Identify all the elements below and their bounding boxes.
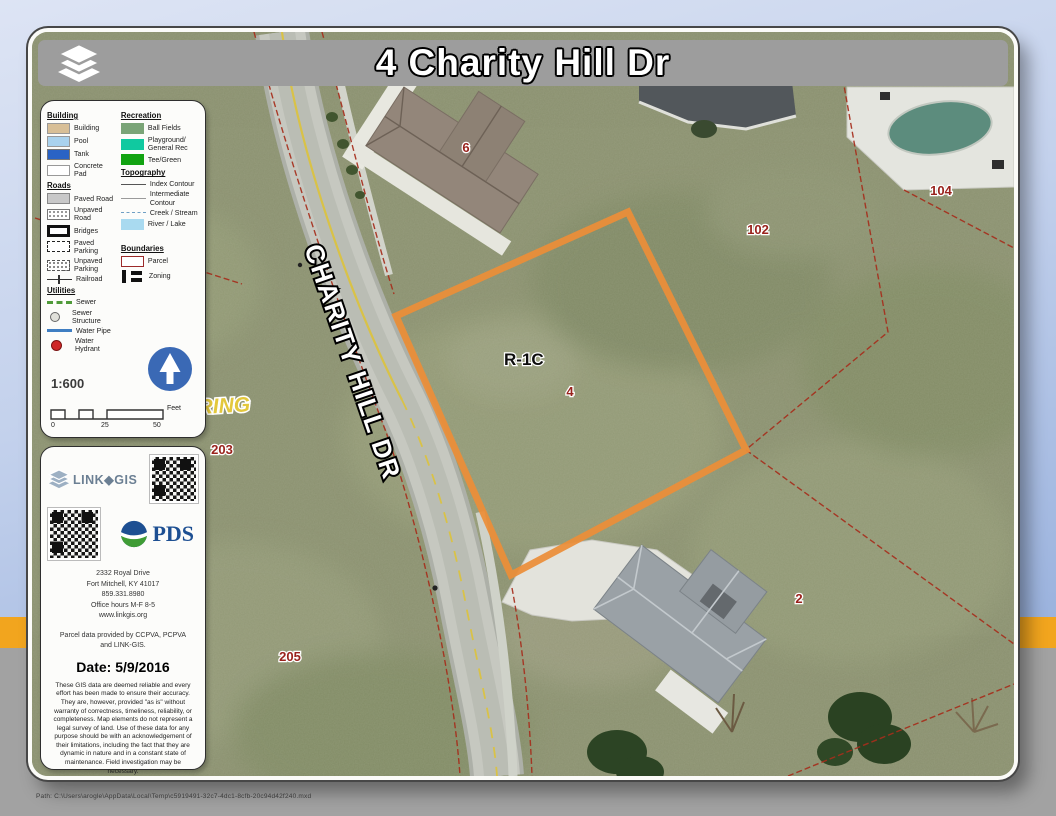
page-title: 4 Charity Hill Dr [376,42,671,84]
scale-tick-50: 50 [153,422,161,429]
river-lake-swatch [121,219,144,230]
paved-parking-swatch [47,241,70,252]
legend-panel: Building Building Pool Tank Concrete Pad… [40,100,206,438]
paved-road-swatch [47,193,70,204]
legend-label: Water Hydrant [75,337,115,353]
parcel-label-6: 6 [462,140,469,155]
address-line: 2332 Royal Drive [48,569,198,580]
linkgis-wordmark: LINK◆GIS [73,472,137,487]
parcel-label-102: 102 [747,222,769,237]
sewer-line-icon [47,301,72,304]
address-line: Office hours M-F 8-5 [48,601,198,612]
scale-bar: 0 25 50 Feet [49,403,199,433]
linkgis-logo: LINK◆GIS [48,469,137,489]
legend-label: Playground/ General Rec [148,136,199,152]
legend-label: Zoning [149,272,171,280]
water-hydrant-icon [51,340,62,351]
office-address-block: 2332 Royal Drive Fort Mitchell, KY 41017… [48,569,198,622]
sewer-structure-icon [50,312,60,322]
zoning-label: R-1C [504,350,544,369]
document-path: Path: C:\Users\arogle\AppData\Local\Temp… [36,793,311,800]
legend-label: Parcel [148,257,168,265]
north-arrow [147,346,193,397]
map-date: Date: 5/9/2016 [48,659,198,675]
address-line: Fort Mitchell, KY 41017 [48,580,198,591]
legend-header-boundaries: Boundaries [121,244,199,253]
parcel-label-104: 104 [930,183,952,198]
legend-label: Sewer [76,298,96,306]
legend-label: Sewer Structure [72,309,115,325]
legend-label: Intermediate Contour [150,190,199,206]
pds-wordmark: PDS [152,521,194,547]
scale-ratio: 1:600 [51,376,84,391]
legend-label: Water Pipe [76,327,111,335]
pool-swatch [47,136,70,147]
utility-point-2 [298,263,302,267]
scale-tick-25: 25 [101,422,109,429]
disclaimer-text: These GIS data are deemed reliable and e… [48,682,198,776]
parcel-label-203: 203 [211,442,233,457]
playground-swatch [121,139,144,150]
legend-label: Building [74,124,99,132]
qr-code-bottom [48,508,100,560]
parcel-label-205: 205 [279,649,301,664]
website-url: www.linkgis.org [48,611,198,622]
zoning-boundary-icon [121,269,145,284]
layers-icon [56,44,102,82]
linkgis-layers-icon [48,469,70,489]
legend-header-roads: Roads [47,181,115,190]
map-sheet: CHARITY HILL DR R-1C RING 4 6 102 104 20… [28,28,1018,780]
parcel-boundary-swatch [121,256,144,267]
tank-swatch [47,149,70,160]
legend-header-recreation: Recreation [121,111,199,120]
legend-label: Tee/Green [148,156,181,164]
legend-label: Pool [74,137,88,145]
legend-header-topography: Topography [121,168,199,177]
legend-header-building: Building [47,111,115,120]
creek-stream-icon [121,212,146,213]
legend-label: Bridges [74,227,98,235]
legend-label: Creek / Stream [150,209,198,217]
ball-fields-swatch [121,123,144,134]
legend-label: Ball Fields [148,124,181,132]
utility-point [432,585,437,590]
address-line: 859.331.8980 [48,590,198,601]
bridges-swatch [47,225,70,237]
legend-label: River / Lake [148,220,186,228]
pds-logo: PDS [120,520,194,548]
legend-header-utilities: Utilities [47,286,115,295]
info-panel: LINK◆GIS PDS 2332 Royal Drive Fort Mitch [40,446,206,770]
map-title-bar: 4 Charity Hill Dr [38,40,1008,86]
legend-label: Tank [74,150,89,158]
unpaved-parking-swatch [47,260,70,271]
scale-unit: Feet [167,405,181,412]
legend-label: Index Contour [150,180,195,188]
screenshot-root: CHARITY HILL DR R-1C RING 4 6 102 104 20… [0,0,1056,816]
qr-code-top [150,455,198,503]
building-swatch [47,123,70,134]
legend-label: Paved Parking [74,239,115,255]
intermediate-contour-icon [121,198,146,199]
legend-label: Railroad [76,275,102,283]
legend-label: Concrete Pad [74,162,115,178]
tee-green-swatch [121,154,144,165]
data-credit: Parcel data provided by CCPVA, PCPVA and… [48,631,198,651]
scale-tick-0: 0 [51,422,55,429]
legend-label: Unpaved Parking [74,257,115,273]
legend-label: Unpaved Road [74,206,115,222]
parcel-label-4: 4 [566,384,574,399]
railroad-icon [47,279,72,280]
concrete-pad-swatch [47,165,70,176]
pds-globe-icon [120,520,148,548]
legend-right-column: Recreation Ball Fields Playground/ Gener… [121,108,199,355]
index-contour-icon [121,184,146,185]
legend-left-column: Building Building Pool Tank Concrete Pad… [47,108,115,355]
scale-bar-graphic [49,403,165,421]
unpaved-road-swatch [47,209,70,220]
legend-label: Paved Road [74,195,113,203]
parcel-label-2: 2 [795,591,802,606]
water-pipe-icon [47,329,72,332]
